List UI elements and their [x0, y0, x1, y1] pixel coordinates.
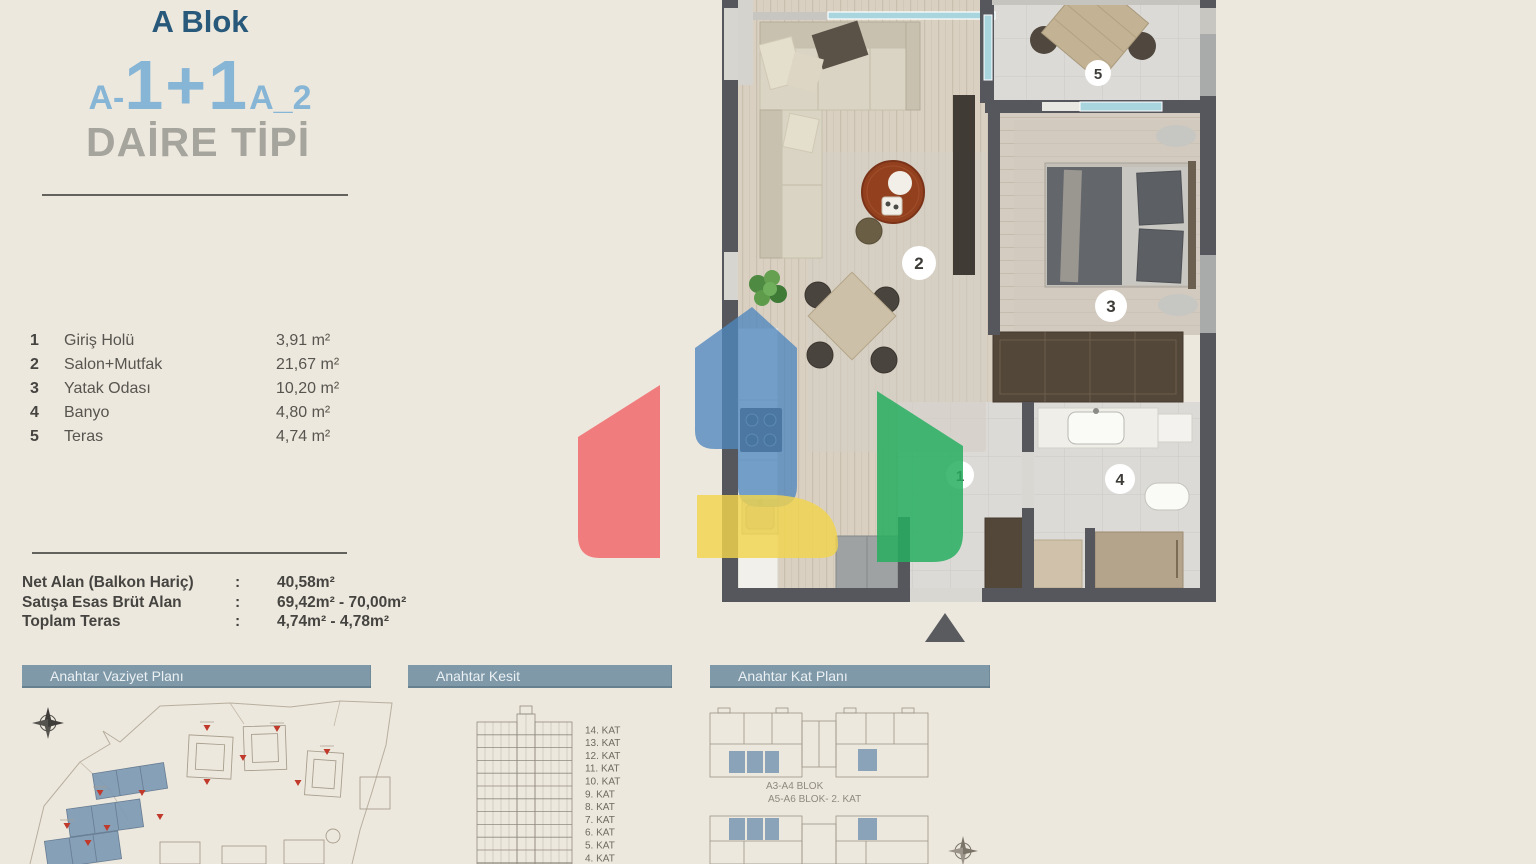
- fluffy-rug: [1156, 125, 1196, 147]
- summary-colon: :: [235, 573, 277, 593]
- room-number: 1: [30, 329, 64, 353]
- summary-colon: :: [235, 593, 277, 613]
- room-area: 10,20 m²: [276, 377, 370, 401]
- room-row: 3 Yatak Odası 10,20 m²: [30, 377, 370, 401]
- svg-text:10. KAT: 10. KAT: [585, 777, 620, 788]
- room-number: 3: [30, 377, 64, 401]
- room-number: 2: [30, 353, 64, 377]
- summary-colon: :: [235, 612, 277, 632]
- room-marker-5: 5: [1085, 60, 1111, 86]
- svg-text:7. KAT: 7. KAT: [585, 815, 615, 826]
- room-area: 3,91 m²: [276, 329, 370, 353]
- entrance-door-gap: [910, 588, 982, 602]
- outline-buildings: [160, 725, 390, 864]
- unit-code-main: 1+1: [124, 50, 249, 120]
- room-number: 5: [30, 425, 64, 449]
- section-header-section: Anahtar Kesit: [408, 665, 672, 688]
- summary-label: Net Alan (Balkon Hariç): [22, 573, 235, 593]
- brochure-page: A Blok A- 1+1 A_2 DAİRE TİPİ 1 Giriş Hol…: [0, 0, 1536, 864]
- room-marker-3: 3: [1095, 290, 1127, 322]
- window: [1080, 102, 1162, 111]
- summary-label: Toplam Teras: [22, 612, 235, 632]
- unit-code-suffix: A_2: [249, 79, 311, 118]
- key-floor-plan-sketch: A3-A4 BLOK A5-A6 BLOK- 2. KAT: [690, 700, 1040, 864]
- shower: [1095, 532, 1183, 588]
- room-number: 4: [30, 401, 64, 425]
- room-marker-2: 2: [902, 246, 936, 280]
- area-summary: Net Alan (Balkon Hariç) : 40,58m² Satışa…: [22, 573, 482, 632]
- room-name: Banyo: [64, 401, 276, 425]
- entrance-arrow-icon: [925, 613, 965, 642]
- unit-code: A- 1+1 A_2: [48, 50, 352, 120]
- svg-text:4: 4: [1116, 472, 1125, 489]
- summary-row: Net Alan (Balkon Hariç) : 40,58m²: [22, 573, 482, 593]
- block-title: A Blok: [48, 4, 352, 40]
- unit-floor-plan: 1 2 3 4 5: [720, 0, 1217, 645]
- window: [984, 15, 992, 80]
- unit-type-subtitle: DAİRE TİPİ: [86, 122, 310, 163]
- compass-icon: [32, 707, 64, 739]
- summary-label: Satışa Esas Brüt Alan: [22, 593, 235, 613]
- room-name: Teras: [64, 425, 276, 449]
- section-header-site-plan: Anahtar Vaziyet Planı: [22, 665, 371, 688]
- room-list: 1 Giriş Holü 3,91 m² 2 Salon+Mutfak 21,6…: [30, 329, 370, 449]
- floor-labels: 14. KAT 13. KAT 12. KAT 11. KAT 10. KAT …: [585, 725, 620, 864]
- room-marker-4: 4: [1105, 464, 1135, 494]
- fluffy-rug: [1158, 294, 1198, 316]
- key-plan-caption-2: A5-A6 BLOK- 2. KAT: [768, 794, 861, 805]
- room-row: 4 Banyo 4,80 m²: [30, 401, 370, 425]
- svg-text:2: 2: [914, 254, 923, 273]
- highlighted-blocks: [44, 763, 167, 864]
- divider-line: [32, 552, 347, 554]
- ottoman: [856, 218, 882, 244]
- summary-row: Toplam Teras : 4,74m² - 4,78m²: [22, 612, 482, 632]
- room-area: 21,67 m²: [276, 353, 370, 377]
- summary-row: Satışa Esas Brüt Alan : 69,42m² - 70,00m…: [22, 593, 482, 613]
- compass-icon: [948, 836, 978, 864]
- room-row: 1 Giriş Holü 3,91 m²: [30, 329, 370, 353]
- room-name: Giriş Holü: [64, 329, 276, 353]
- svg-text:14. KAT: 14. KAT: [585, 725, 620, 736]
- section-header-key-plan: Anahtar Kat Planı: [710, 665, 990, 688]
- stove: [740, 408, 782, 452]
- site-plan-sketch: [0, 698, 400, 864]
- svg-text:5: 5: [1094, 66, 1102, 83]
- room-area: 4,80 m²: [276, 401, 370, 425]
- window: [828, 12, 995, 19]
- svg-text:1: 1: [956, 468, 964, 485]
- wardrobe: [993, 332, 1183, 402]
- room-marker-1: 1: [946, 461, 974, 489]
- room-name: Yatak Odası: [64, 377, 276, 401]
- key-plan-caption-1: A3-A4 BLOK: [766, 781, 824, 792]
- room-row: 5 Teras 4,74 m²: [30, 425, 370, 449]
- coffee-table: [862, 161, 924, 223]
- room-row: 2 Salon+Mutfak 21,67 m²: [30, 353, 370, 377]
- summary-value: 69,42m² - 70,00m²: [277, 593, 482, 613]
- summary-value: 40,58m²: [277, 573, 482, 593]
- building-section-sketch: 14. KAT 13. KAT 12. KAT 11. KAT 10. KAT …: [450, 700, 700, 864]
- svg-text:8. KAT: 8. KAT: [585, 802, 615, 813]
- svg-text:9. KAT: 9. KAT: [585, 789, 615, 800]
- dining-set: [805, 272, 899, 373]
- logo-red-shape: [578, 385, 660, 558]
- unit-code-prefix: A-: [88, 79, 124, 118]
- summary-value: 4,74m² - 4,78m²: [277, 612, 482, 632]
- svg-text:3: 3: [1106, 297, 1115, 316]
- room-area: 4,74 m²: [276, 425, 370, 449]
- svg-text:4. KAT: 4. KAT: [585, 853, 615, 864]
- tv-console: [953, 95, 975, 275]
- room-name: Salon+Mutfak: [64, 353, 276, 377]
- svg-text:12. KAT: 12. KAT: [585, 751, 620, 762]
- svg-text:6. KAT: 6. KAT: [585, 828, 615, 839]
- divider-line: [42, 194, 348, 196]
- bed: [1045, 161, 1196, 289]
- svg-text:5. KAT: 5. KAT: [585, 841, 615, 852]
- svg-text:11. KAT: 11. KAT: [585, 764, 620, 775]
- svg-text:13. KAT: 13. KAT: [585, 738, 620, 749]
- toilet: [1145, 483, 1189, 510]
